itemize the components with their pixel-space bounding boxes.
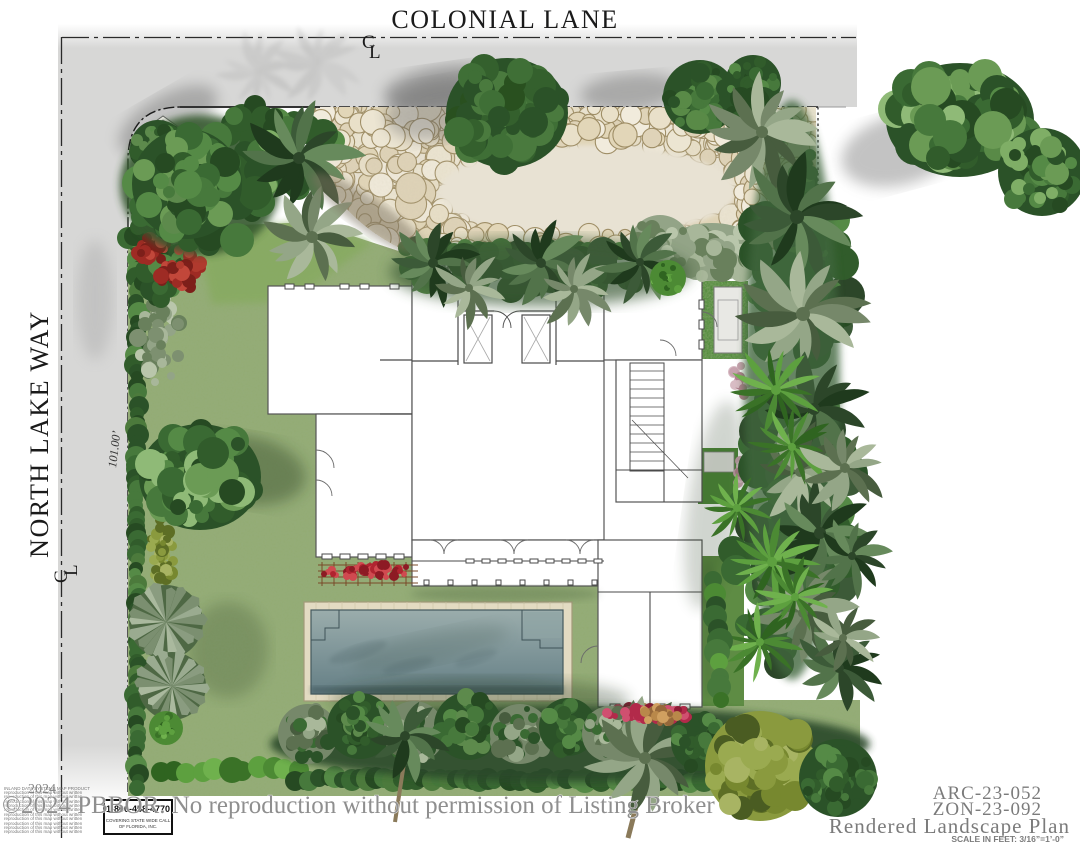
svg-text:NORTH LAKE WAY: NORTH LAKE WAY bbox=[25, 310, 54, 558]
svg-text:©2024 PBBOR. No reproduction w: ©2024 PBBOR. No reproduction without per… bbox=[2, 792, 715, 819]
svg-text:reproduction of this map witho: reproduction of this map without written bbox=[4, 829, 83, 834]
svg-text:OF FLORIDA, INC.: OF FLORIDA, INC. bbox=[119, 824, 158, 829]
svg-text:SCALE IN FEET: 3/16”=1’-0”: SCALE IN FEET: 3/16”=1’-0” bbox=[951, 834, 1064, 844]
svg-text:L: L bbox=[369, 42, 381, 63]
svg-text:L: L bbox=[61, 564, 82, 576]
svg-text:COLONIAL LANE: COLONIAL LANE bbox=[391, 5, 618, 34]
